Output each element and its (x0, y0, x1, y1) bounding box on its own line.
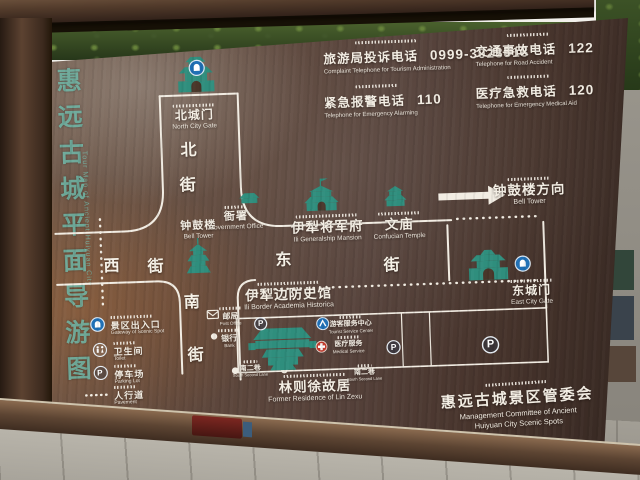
uyghur-text (337, 335, 359, 339)
label-tourist-service: 游客服务中心 Tourist Service Center (328, 315, 373, 335)
label-east-gate: 东城门 East City Gate (510, 279, 553, 307)
uyghur-text (243, 360, 257, 363)
bell-tower-icon (186, 238, 211, 274)
legend-parking: P 停车场 Parking Lot (92, 364, 145, 387)
scenic-gateway-icon (88, 316, 106, 333)
scenic-gateway-icon (189, 60, 205, 76)
parking-icon: P (92, 365, 110, 381)
road-northeast (238, 86, 452, 227)
street-north-char1: 北 (180, 136, 197, 161)
medical-service-icon (316, 341, 327, 352)
bank-icon (211, 333, 218, 340)
uyghur-text (508, 177, 550, 181)
legend-gateway: 景区出入口 Gateway of Scenic Spot (88, 314, 164, 338)
label-bell-tower-direction: 钟鼓楼方向 Bell Tower (492, 176, 565, 207)
toilet-icon (91, 342, 109, 358)
confucian-temple-icon (384, 186, 407, 207)
legend-toilet: 卫生间 Toilet (91, 341, 144, 364)
street-east-char1: 东 (275, 246, 292, 271)
photo-of-signboard: 惠远古城平面导游图 Tour Map of Ancient Huiyuan Ci… (0, 0, 640, 480)
label-north-gate: 北城门 North City Gate (172, 103, 218, 131)
street-west-char2: 街 (147, 252, 164, 277)
uyghur-text (110, 315, 152, 319)
uyghur-text (378, 211, 420, 215)
uyghur-text (219, 306, 241, 310)
street-south-char2: 街 (187, 341, 204, 366)
street-west-char1: 西 (103, 252, 120, 277)
background-object (243, 422, 252, 438)
wooden-post-left (0, 18, 52, 442)
label-bank: 银行 Bank (218, 329, 241, 349)
road-northwest (51, 96, 165, 234)
label-mansion: 伊犁将军府 Ili Generalship Mansion (291, 213, 364, 243)
uyghur-text (225, 205, 247, 209)
road-north-cap (160, 93, 238, 96)
pavement-dashes-icon (85, 386, 109, 398)
scenic-gateway-icon (515, 256, 531, 272)
uyghur-text (339, 315, 361, 319)
background-object (608, 346, 636, 382)
uyghur-text (357, 364, 371, 367)
label-government-office: 衙署 Government Office (208, 205, 263, 232)
label-post-office: 邮局 Post Office (219, 306, 242, 326)
uyghur-text (114, 364, 136, 368)
tourist-service-icon (316, 317, 328, 329)
parking-glyph: P (391, 343, 397, 352)
parking-glyph: P (258, 320, 264, 328)
street-south-char1: 南 (183, 288, 200, 313)
red-object (192, 415, 242, 438)
road-eastgate-west (447, 225, 449, 280)
label-medical-service: 医疗服务 Medical Service (332, 335, 364, 354)
signboard: 惠远古城平面导游图 Tour Map of Ancient Huiyuan Ci… (50, 16, 628, 474)
label-museum: 伊犁边防史馆 Ili Border Academia Historica (243, 280, 334, 312)
parking-glyph: P (487, 339, 495, 350)
label-lane-right: 南二巷 South Second Lane (347, 364, 383, 383)
street-east-char2: 街 (383, 251, 400, 276)
label-temple: 文庙 Confucian Temple (373, 211, 426, 241)
uyghur-text (113, 341, 135, 345)
label-lane-left: 南二巷 South Second Lane (232, 360, 268, 379)
uyghur-text (114, 385, 136, 389)
uyghur-text (218, 329, 240, 333)
post-office-icon (207, 310, 218, 318)
street-north-char2: 街 (179, 171, 196, 196)
